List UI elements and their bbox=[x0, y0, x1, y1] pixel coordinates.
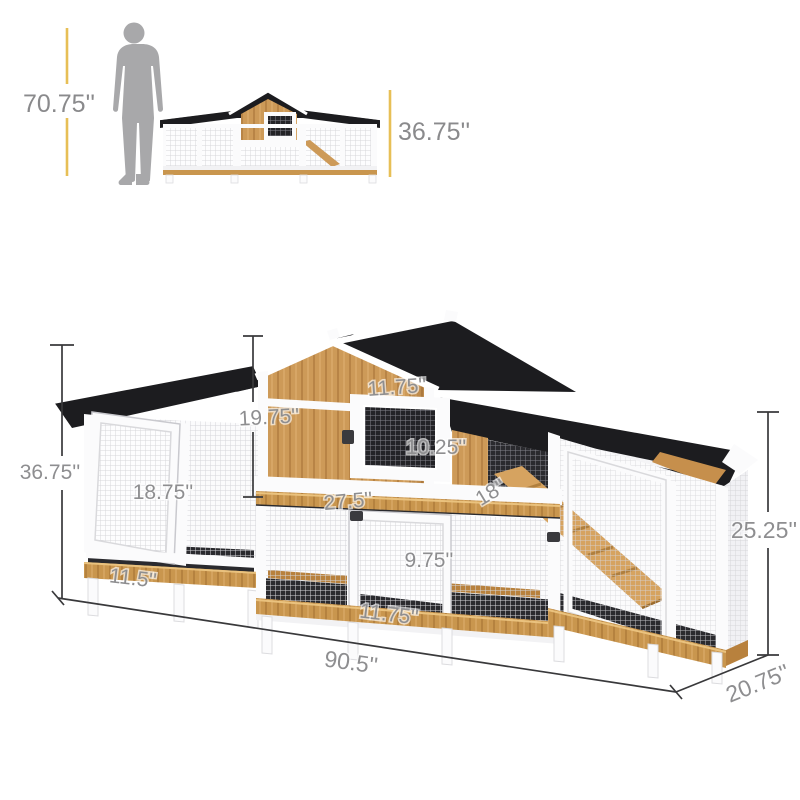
dim-house-width: 27.5'' bbox=[323, 488, 374, 515]
dim-left-base-width: 11.5'' bbox=[108, 564, 158, 593]
dim-right-height: 25.25'' bbox=[731, 517, 797, 543]
diagram-canvas: 70.75'' bbox=[0, 0, 800, 800]
hutch-thumbnail bbox=[159, 91, 381, 183]
thumbnail-height-label: 36.75'' bbox=[398, 118, 470, 146]
dim-run-door-height: 9.75'' bbox=[405, 549, 454, 572]
dim-overall-height: 36.75'' bbox=[20, 461, 81, 484]
dim-window-height: 10.25'' bbox=[406, 436, 467, 459]
product-dimension-diagram: 70.75'' bbox=[0, 0, 800, 800]
scale-row: 70.75'' bbox=[23, 23, 470, 186]
door-latch-icon bbox=[547, 532, 560, 542]
person-height-label: 70.75'' bbox=[23, 90, 95, 118]
person-silhouette-icon bbox=[113, 23, 163, 186]
dim-left-door-height: 18.75'' bbox=[133, 481, 194, 504]
dim-overall-width: 90.5'' bbox=[323, 645, 380, 678]
dim-window-width: 11.75'' bbox=[367, 374, 427, 401]
window-latch-icon bbox=[342, 430, 354, 444]
dim-overall-depth: 20.75'' bbox=[722, 659, 793, 708]
dim-house-height: 19.75'' bbox=[238, 404, 300, 430]
